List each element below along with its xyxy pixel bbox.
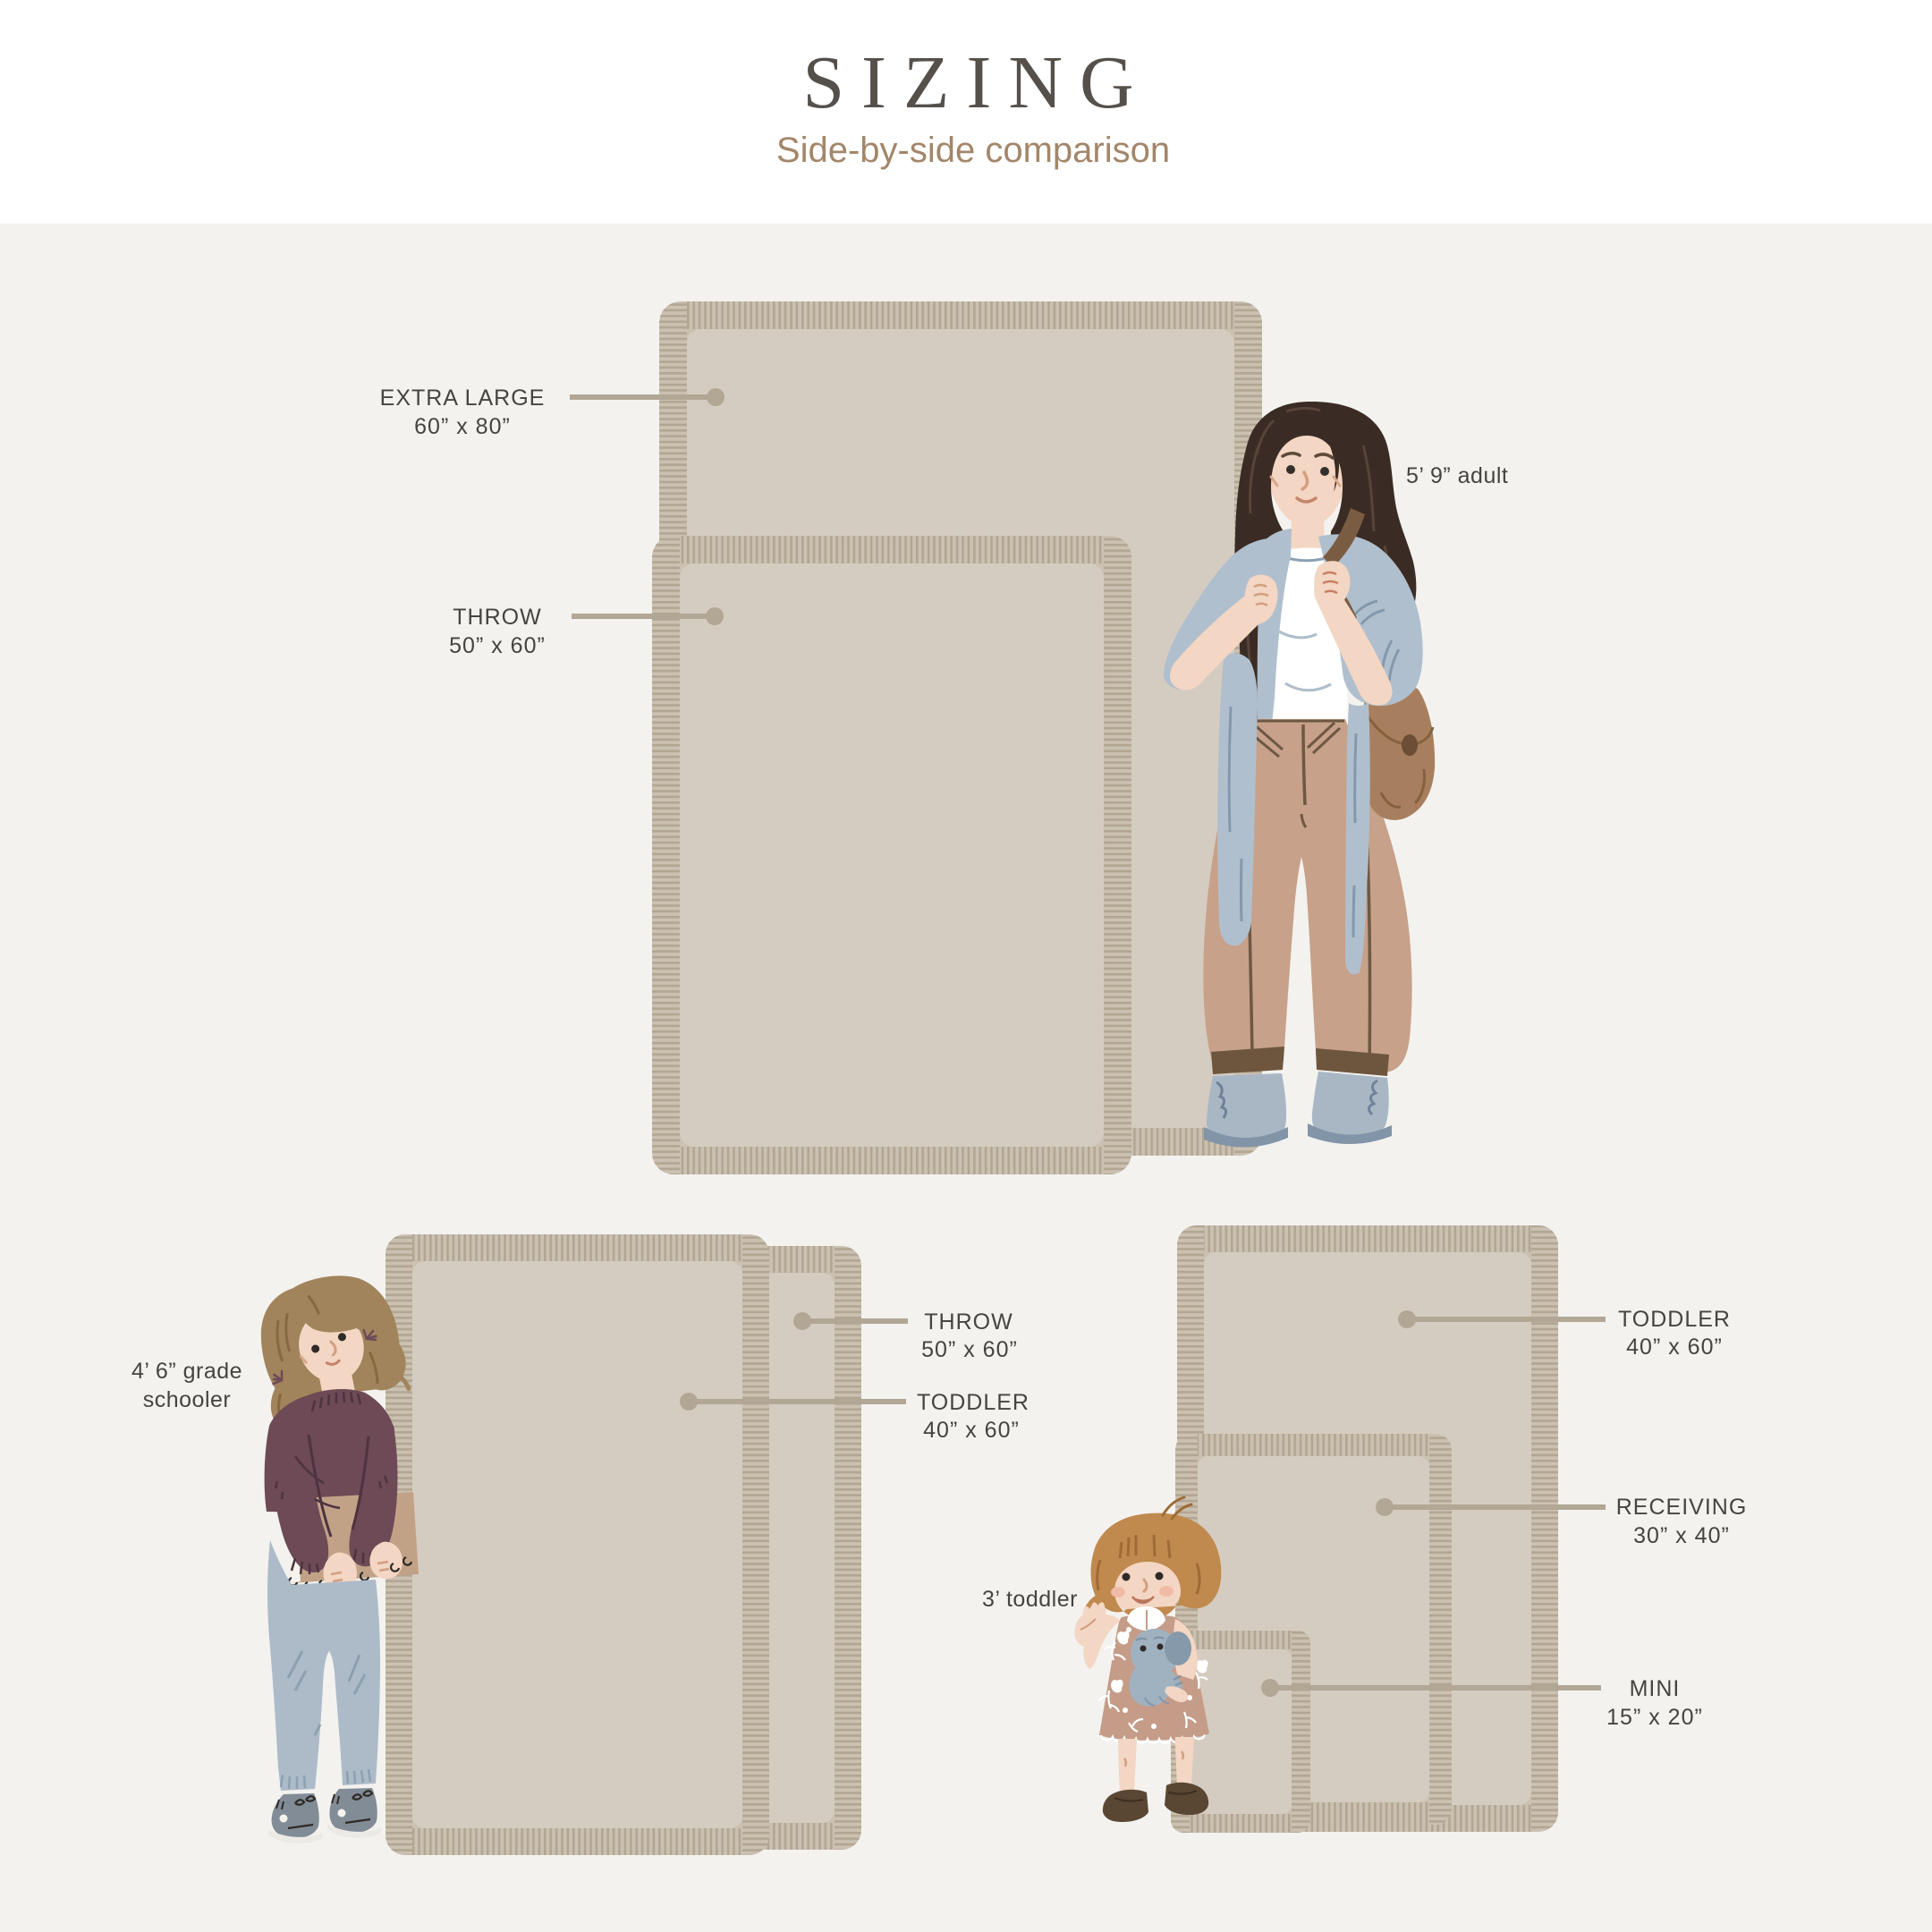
svg-text:40” x 60”: 40” x 60” bbox=[923, 1418, 1020, 1443]
svg-text:SIZING: SIZING bbox=[802, 41, 1150, 124]
svg-text:40” x 60”: 40” x 60” bbox=[1626, 1335, 1723, 1360]
svg-text:THROW: THROW bbox=[453, 605, 541, 630]
svg-text:30” x 40”: 30” x 40” bbox=[1633, 1523, 1730, 1548]
svg-text:5’ 9” adult: 5’ 9” adult bbox=[1406, 463, 1508, 488]
svg-text:50” x 60”: 50” x 60” bbox=[449, 633, 546, 658]
svg-text:4’ 6” grade: 4’ 6” grade bbox=[131, 1359, 242, 1384]
svg-text:MINI: MINI bbox=[1630, 1676, 1681, 1701]
svg-text:60” x 80”: 60” x 80” bbox=[414, 414, 511, 439]
svg-text:schooler: schooler bbox=[143, 1387, 232, 1412]
svg-text:THROW: THROW bbox=[924, 1309, 1013, 1335]
svg-text:EXTRA LARGE: EXTRA LARGE bbox=[380, 386, 546, 411]
svg-text:15” x 20”: 15” x 20” bbox=[1606, 1705, 1703, 1730]
svg-text:Side-by-side comparison: Side-by-side comparison bbox=[776, 131, 1170, 170]
svg-text:RECEIVING: RECEIVING bbox=[1616, 1495, 1748, 1520]
svg-text:TODDLER: TODDLER bbox=[1618, 1307, 1731, 1332]
svg-text:TODDLER: TODDLER bbox=[917, 1390, 1030, 1415]
svg-text:50” x 60”: 50” x 60” bbox=[921, 1337, 1018, 1362]
svg-text:3’ toddler: 3’ toddler bbox=[982, 1587, 1078, 1612]
